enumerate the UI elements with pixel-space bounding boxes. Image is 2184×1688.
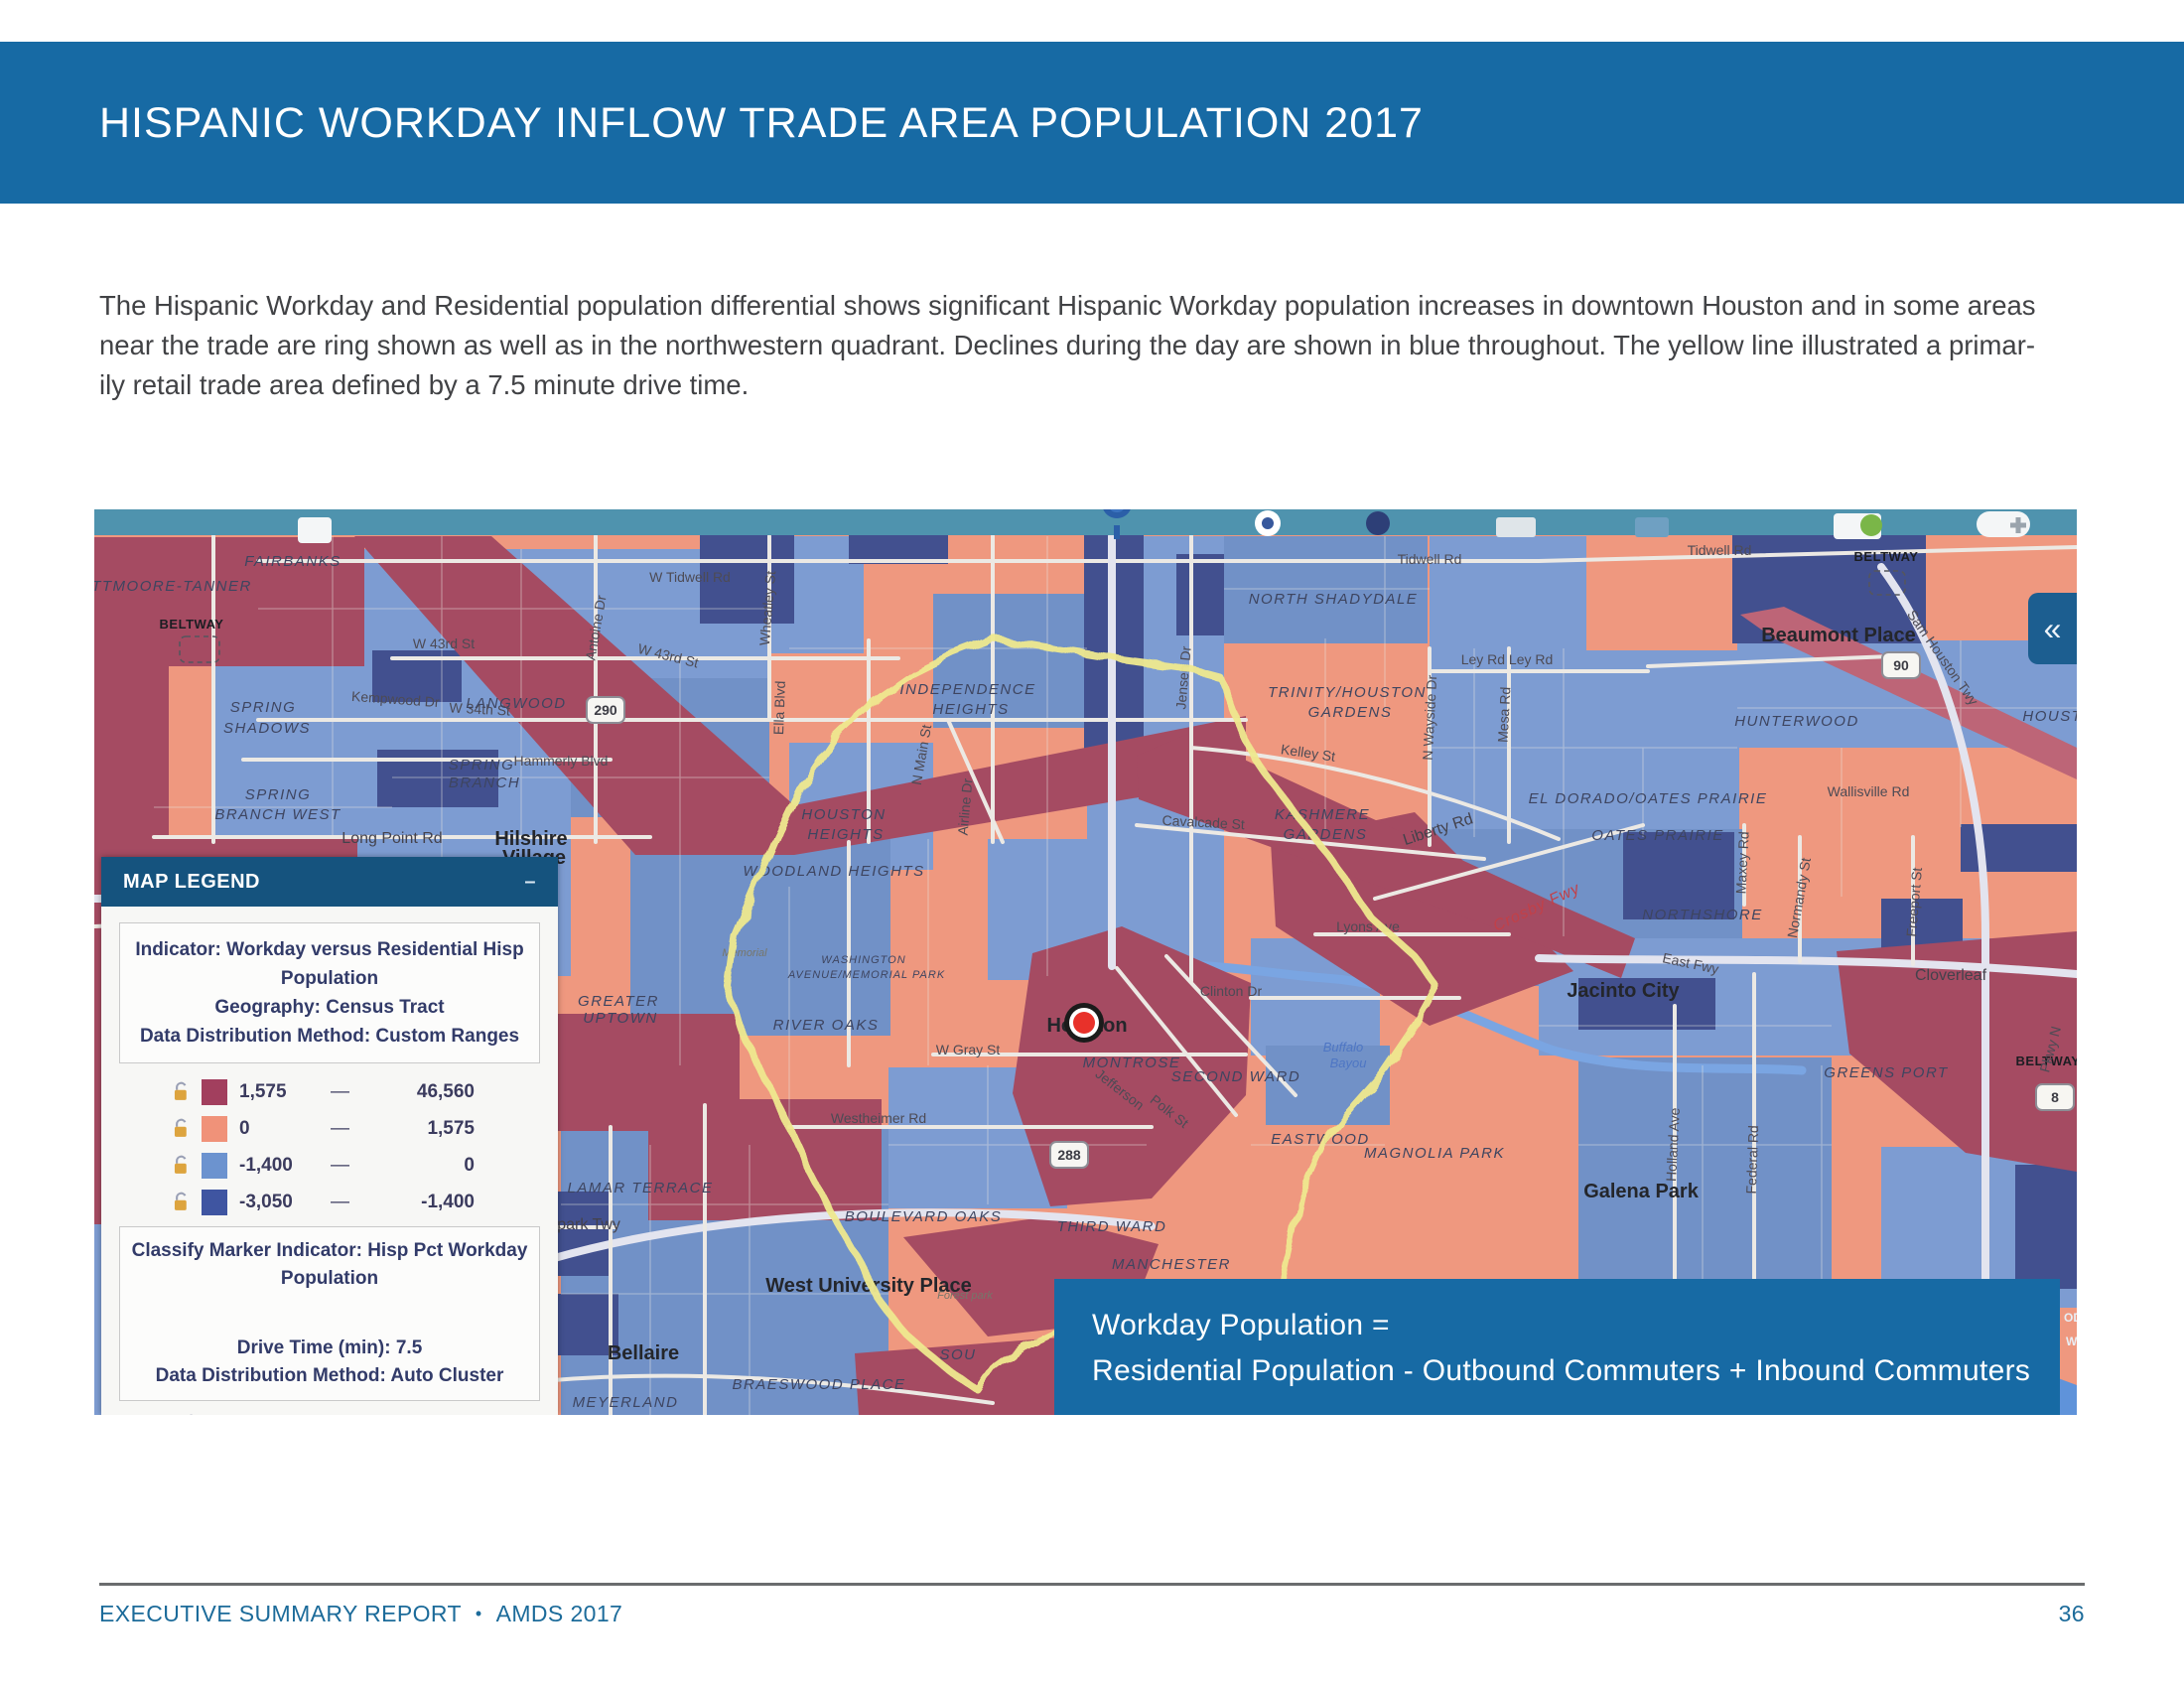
intro-paragraph: The Hispanic Workday and Residential pop… xyxy=(99,286,2105,405)
map-label: NORTH SHADYDALE xyxy=(1249,591,1419,608)
map-label: W xyxy=(2066,1335,2077,1348)
map-label: Tidwell Rd xyxy=(1688,542,1752,558)
class-min: 1,575 xyxy=(239,1081,331,1103)
map-label: MAGNOLIA PARK xyxy=(1364,1145,1505,1162)
distribution-line: Data Distribution Method: Auto Cluster xyxy=(126,1362,533,1390)
class-max: 46,560 xyxy=(370,1081,475,1103)
indicator-line: Geography: Census Tract xyxy=(126,993,533,1022)
map-label: FAIRBANKS xyxy=(244,553,341,570)
workday-formula-callout: Workday Population = Residential Populat… xyxy=(1054,1279,2060,1415)
unlock-icon[interactable] xyxy=(181,1413,202,1415)
map-label: Long Point Rd xyxy=(341,830,442,847)
map-label: GREATER xyxy=(578,993,659,1010)
legend-class-row: -1,400—0 xyxy=(171,1147,540,1184)
map-label: AVENUE/MEMORIAL PARK xyxy=(787,969,945,981)
map-legend-panel: MAP LEGEND – Indicator: Workday versus R… xyxy=(101,857,558,1415)
map-label: GREENS PORT xyxy=(1824,1064,1949,1081)
paragraph-line: The Hispanic Workday and Residential pop… xyxy=(99,286,2105,326)
class-color-swatch xyxy=(202,1190,227,1215)
map-label: BRAESWOOD PLACE xyxy=(732,1376,905,1393)
panel-collapse-tab[interactable]: « xyxy=(2028,593,2077,664)
class-max: 0 xyxy=(370,1155,475,1177)
map-label: LAMAR TERRACE xyxy=(567,1180,713,1196)
map-label: W Gray St xyxy=(936,1042,1001,1057)
class-dash: — xyxy=(331,1192,370,1213)
unlock-icon[interactable] xyxy=(171,1154,192,1177)
legend-class-rows: 1,575—46,5600—1,575-1,400—0-3,050—-1,400 xyxy=(171,1073,540,1220)
svg-text:290: 290 xyxy=(594,702,617,718)
houston-center-marker[interactable] xyxy=(1064,1003,1104,1043)
map-label: MEYERLAND xyxy=(573,1394,679,1411)
map-label: SOU xyxy=(939,1346,976,1363)
map-label: HOUSTON xyxy=(801,806,886,823)
legend-class-row: 0—1,575 xyxy=(171,1110,540,1147)
map-label: Clinton Dr xyxy=(1200,983,1263,999)
map-label: THIRD WARD xyxy=(1057,1218,1167,1235)
legend-indicator-box: Indicator: Workday versus Residential Hi… xyxy=(119,922,540,1063)
map-label: SPRING xyxy=(245,786,312,803)
highway-shield: 290 xyxy=(587,697,624,723)
page-title: HISPANIC WORKDAY INFLOW TRADE AREA POPUL… xyxy=(99,99,1424,148)
map-label: Beaumont Place xyxy=(1761,625,1916,646)
svg-text:8: 8 xyxy=(2051,1089,2059,1105)
map-label: LANGWOOD xyxy=(466,695,566,712)
unlock-icon[interactable] xyxy=(171,1117,192,1140)
map-label: Jacinto City xyxy=(1567,980,1680,1002)
map-label: Buffalo xyxy=(1323,1040,1363,1055)
map-label: Federal Rd xyxy=(1743,1125,1761,1195)
indicator-line: Indicator: Workday versus Residential Hi… xyxy=(126,935,533,964)
highway-shield: 288 xyxy=(1050,1142,1088,1168)
class-color-swatch xyxy=(202,1116,227,1142)
map-label: GARDENS xyxy=(1308,704,1393,721)
map-label: WOODLAND HEIGHTS xyxy=(743,863,924,880)
map-label: Bayou xyxy=(1330,1055,1367,1070)
class-dash: — xyxy=(331,1155,370,1177)
highway-shield: 8 xyxy=(2036,1084,2074,1110)
map-label: Ley Rd Ley Rd xyxy=(1461,651,1554,667)
map-label: WASHINGTON xyxy=(821,954,905,966)
map-label: Maxey Rd xyxy=(1732,831,1751,895)
map-label: GARDENS xyxy=(1284,826,1368,843)
map-label: INDEPENDENCE xyxy=(899,681,1035,698)
class-dash: — xyxy=(331,1081,370,1103)
map-label: HUNTERWOOD xyxy=(1734,713,1859,730)
toolbar-button xyxy=(1496,517,1536,537)
green-marker-icon xyxy=(1860,514,1882,536)
map-label: W 43rd St xyxy=(413,635,475,651)
map-label: BRANCH WEST xyxy=(214,806,341,823)
footer-separator: • xyxy=(476,1604,482,1623)
indicator-line: Population xyxy=(126,964,533,993)
legend-class-row: 1,575—46,560 xyxy=(171,1073,540,1110)
map-label: Ella Blvd xyxy=(770,680,788,735)
map-label: Hammerly Blvd xyxy=(514,753,609,769)
map-label: OATES PRAIRIE xyxy=(1591,827,1723,844)
map-label: BOULEVARD OAKS xyxy=(845,1208,1003,1225)
indicator-line: Data Distribution Method: Custom Ranges xyxy=(126,1022,533,1051)
map-label: EL DORADO/OATES PRAIRIE xyxy=(1529,790,1768,807)
map-label: SECOND WARD xyxy=(1171,1068,1300,1085)
class-min: -1,400 xyxy=(239,1155,331,1177)
map-label: OD xyxy=(2064,1311,2077,1325)
svg-text:288: 288 xyxy=(1057,1147,1081,1163)
map-label: NORTHSHORE xyxy=(1642,907,1762,923)
legend-header[interactable]: MAP LEGEND – xyxy=(101,857,558,907)
map-label: Forest park xyxy=(937,1290,993,1302)
map-label: W Tidwell Rd xyxy=(649,569,731,585)
map-label: SHADOWS xyxy=(223,720,311,737)
map-label: SPRING xyxy=(449,757,515,774)
drive-time-line: Drive Time (min): 7.5 xyxy=(126,1335,533,1362)
map-label: TTMOORE-TANNER xyxy=(94,578,252,595)
map-label: HOUSTON xyxy=(2022,708,2077,725)
map-label: BRANCH xyxy=(449,774,520,791)
class-max: 1,575 xyxy=(370,1118,475,1140)
footer-report-label: EXECUTIVE SUMMARY REPORT xyxy=(99,1601,462,1626)
map-label: RIVER OAKS xyxy=(773,1017,880,1034)
class-dash: — xyxy=(331,1118,370,1140)
map-label: MANCHESTER xyxy=(1112,1256,1231,1273)
class-color-swatch xyxy=(202,1153,227,1179)
map-label: HEIGHTS xyxy=(932,701,1009,718)
footer-edition-label: AMDS 2017 xyxy=(496,1601,623,1626)
svg-text:90: 90 xyxy=(1893,657,1909,673)
legend-truncated-row xyxy=(181,1413,540,1415)
map-label: Galena Park xyxy=(1583,1181,1700,1202)
map-label: SPRING xyxy=(230,699,297,716)
map-label: TRINITY/HOUSTON xyxy=(1268,684,1427,701)
map-label: Wallisville Rd xyxy=(1828,783,1910,799)
legend-title: MAP LEGEND xyxy=(123,871,260,893)
paragraph-line: near the trade are ring shown as well as… xyxy=(99,326,2105,365)
map-figure: FAIRBANKSTTMOORE-TANNERBELTWAYW Tidwell … xyxy=(94,509,2077,1415)
map-label: HEIGHTS xyxy=(807,826,884,843)
map-label: Westheimer Rd xyxy=(831,1110,926,1126)
map-label: UPTOWN xyxy=(583,1010,657,1027)
legend-class-row: -3,050—-1,400 xyxy=(171,1184,540,1220)
paragraph-line: ily retail trade area defined by a 7.5 m… xyxy=(99,365,2105,405)
footer-rule xyxy=(99,1583,2085,1586)
class-min: 0 xyxy=(239,1118,331,1140)
toolbar-button xyxy=(298,517,332,543)
formula-line: Workday Population = xyxy=(1092,1309,2060,1342)
map-label: Bellaire xyxy=(608,1342,679,1364)
toolbar-button xyxy=(1635,517,1669,537)
footer: EXECUTIVE SUMMARY REPORT•AMDS 2017 36 xyxy=(99,1601,2085,1627)
class-color-swatch xyxy=(202,1079,227,1105)
class-min: -3,050 xyxy=(239,1192,331,1213)
legend-classify-box: Classify Marker Indicator: Hisp Pct Work… xyxy=(119,1226,540,1401)
map-label: BELTWAY xyxy=(1854,549,1919,564)
unlock-icon[interactable] xyxy=(171,1080,192,1103)
highway-shield: 90 xyxy=(1882,652,1920,678)
map-label: Mesa Rd xyxy=(1495,686,1514,743)
page-number: 36 xyxy=(2059,1601,2085,1627)
class-max: -1,400 xyxy=(370,1192,475,1213)
dark-pin-icon xyxy=(1366,511,1390,535)
classify-line: Classify Marker Indicator: Hisp Pct Work… xyxy=(126,1237,533,1265)
unlock-icon[interactable] xyxy=(171,1191,192,1213)
map-label: MONTROSE xyxy=(1083,1055,1181,1071)
legend-minimize-button[interactable]: – xyxy=(524,857,536,907)
formula-line: Residential Population - Outbound Commut… xyxy=(1092,1354,2060,1388)
title-band: HISPANIC WORKDAY INFLOW TRADE AREA POPUL… xyxy=(0,42,2184,204)
classify-line: Population xyxy=(126,1265,533,1293)
map-label: Cloverleaf xyxy=(1915,967,1987,984)
map-label: BELTWAY xyxy=(160,617,224,632)
map-label: Tidwell Rd xyxy=(1398,551,1462,567)
